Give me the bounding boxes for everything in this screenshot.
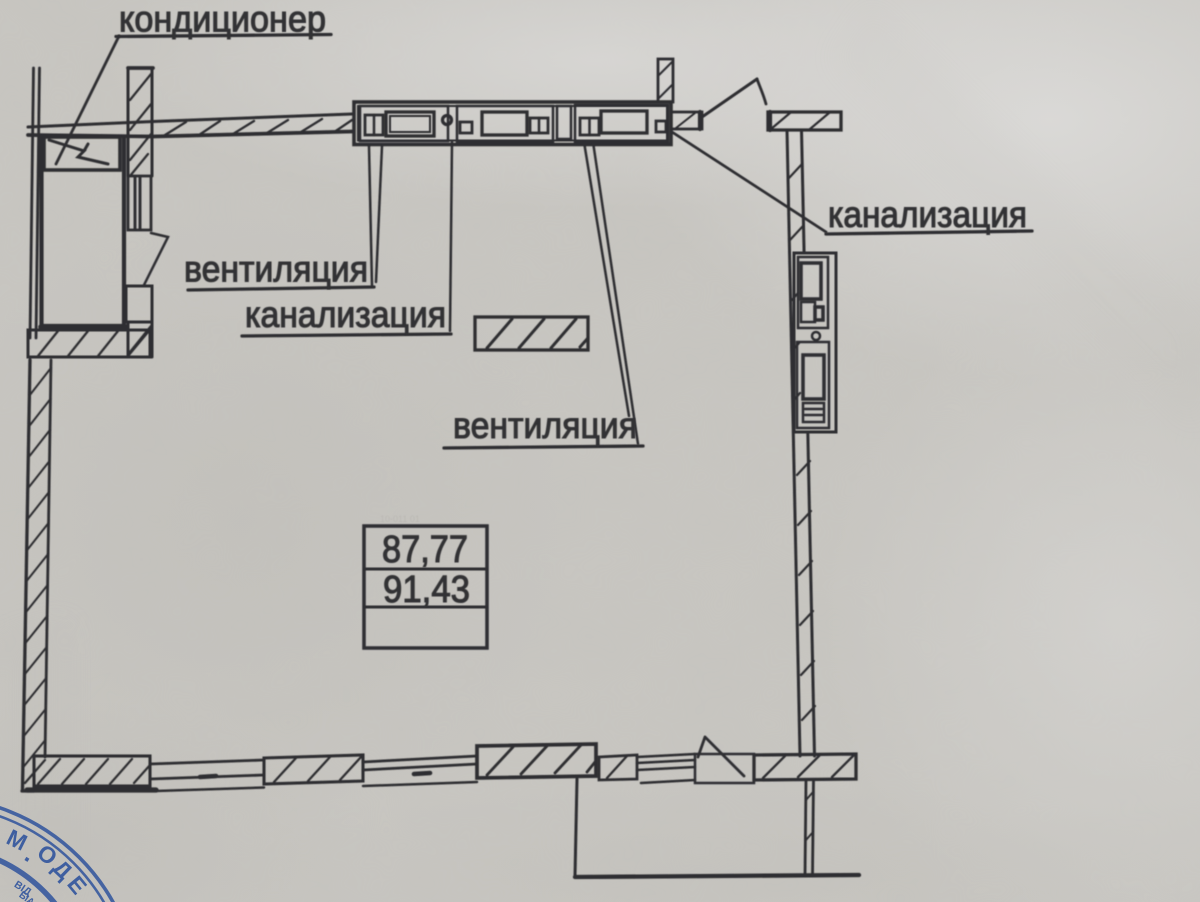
svg-text:91,43: 91,43 xyxy=(383,569,470,611)
svg-text:канализация: канализация xyxy=(245,294,446,335)
svg-text:вентиляция: вентиляция xyxy=(453,405,637,446)
svg-text:10-011 01: 10-011 01 xyxy=(380,514,420,524)
svg-text:канализация: канализация xyxy=(828,194,1027,235)
svg-text:вентиляция: вентиляция xyxy=(184,249,368,290)
svg-text:87,77: 87,77 xyxy=(382,529,468,571)
svg-text:кондиционер: кондиционер xyxy=(119,0,326,40)
